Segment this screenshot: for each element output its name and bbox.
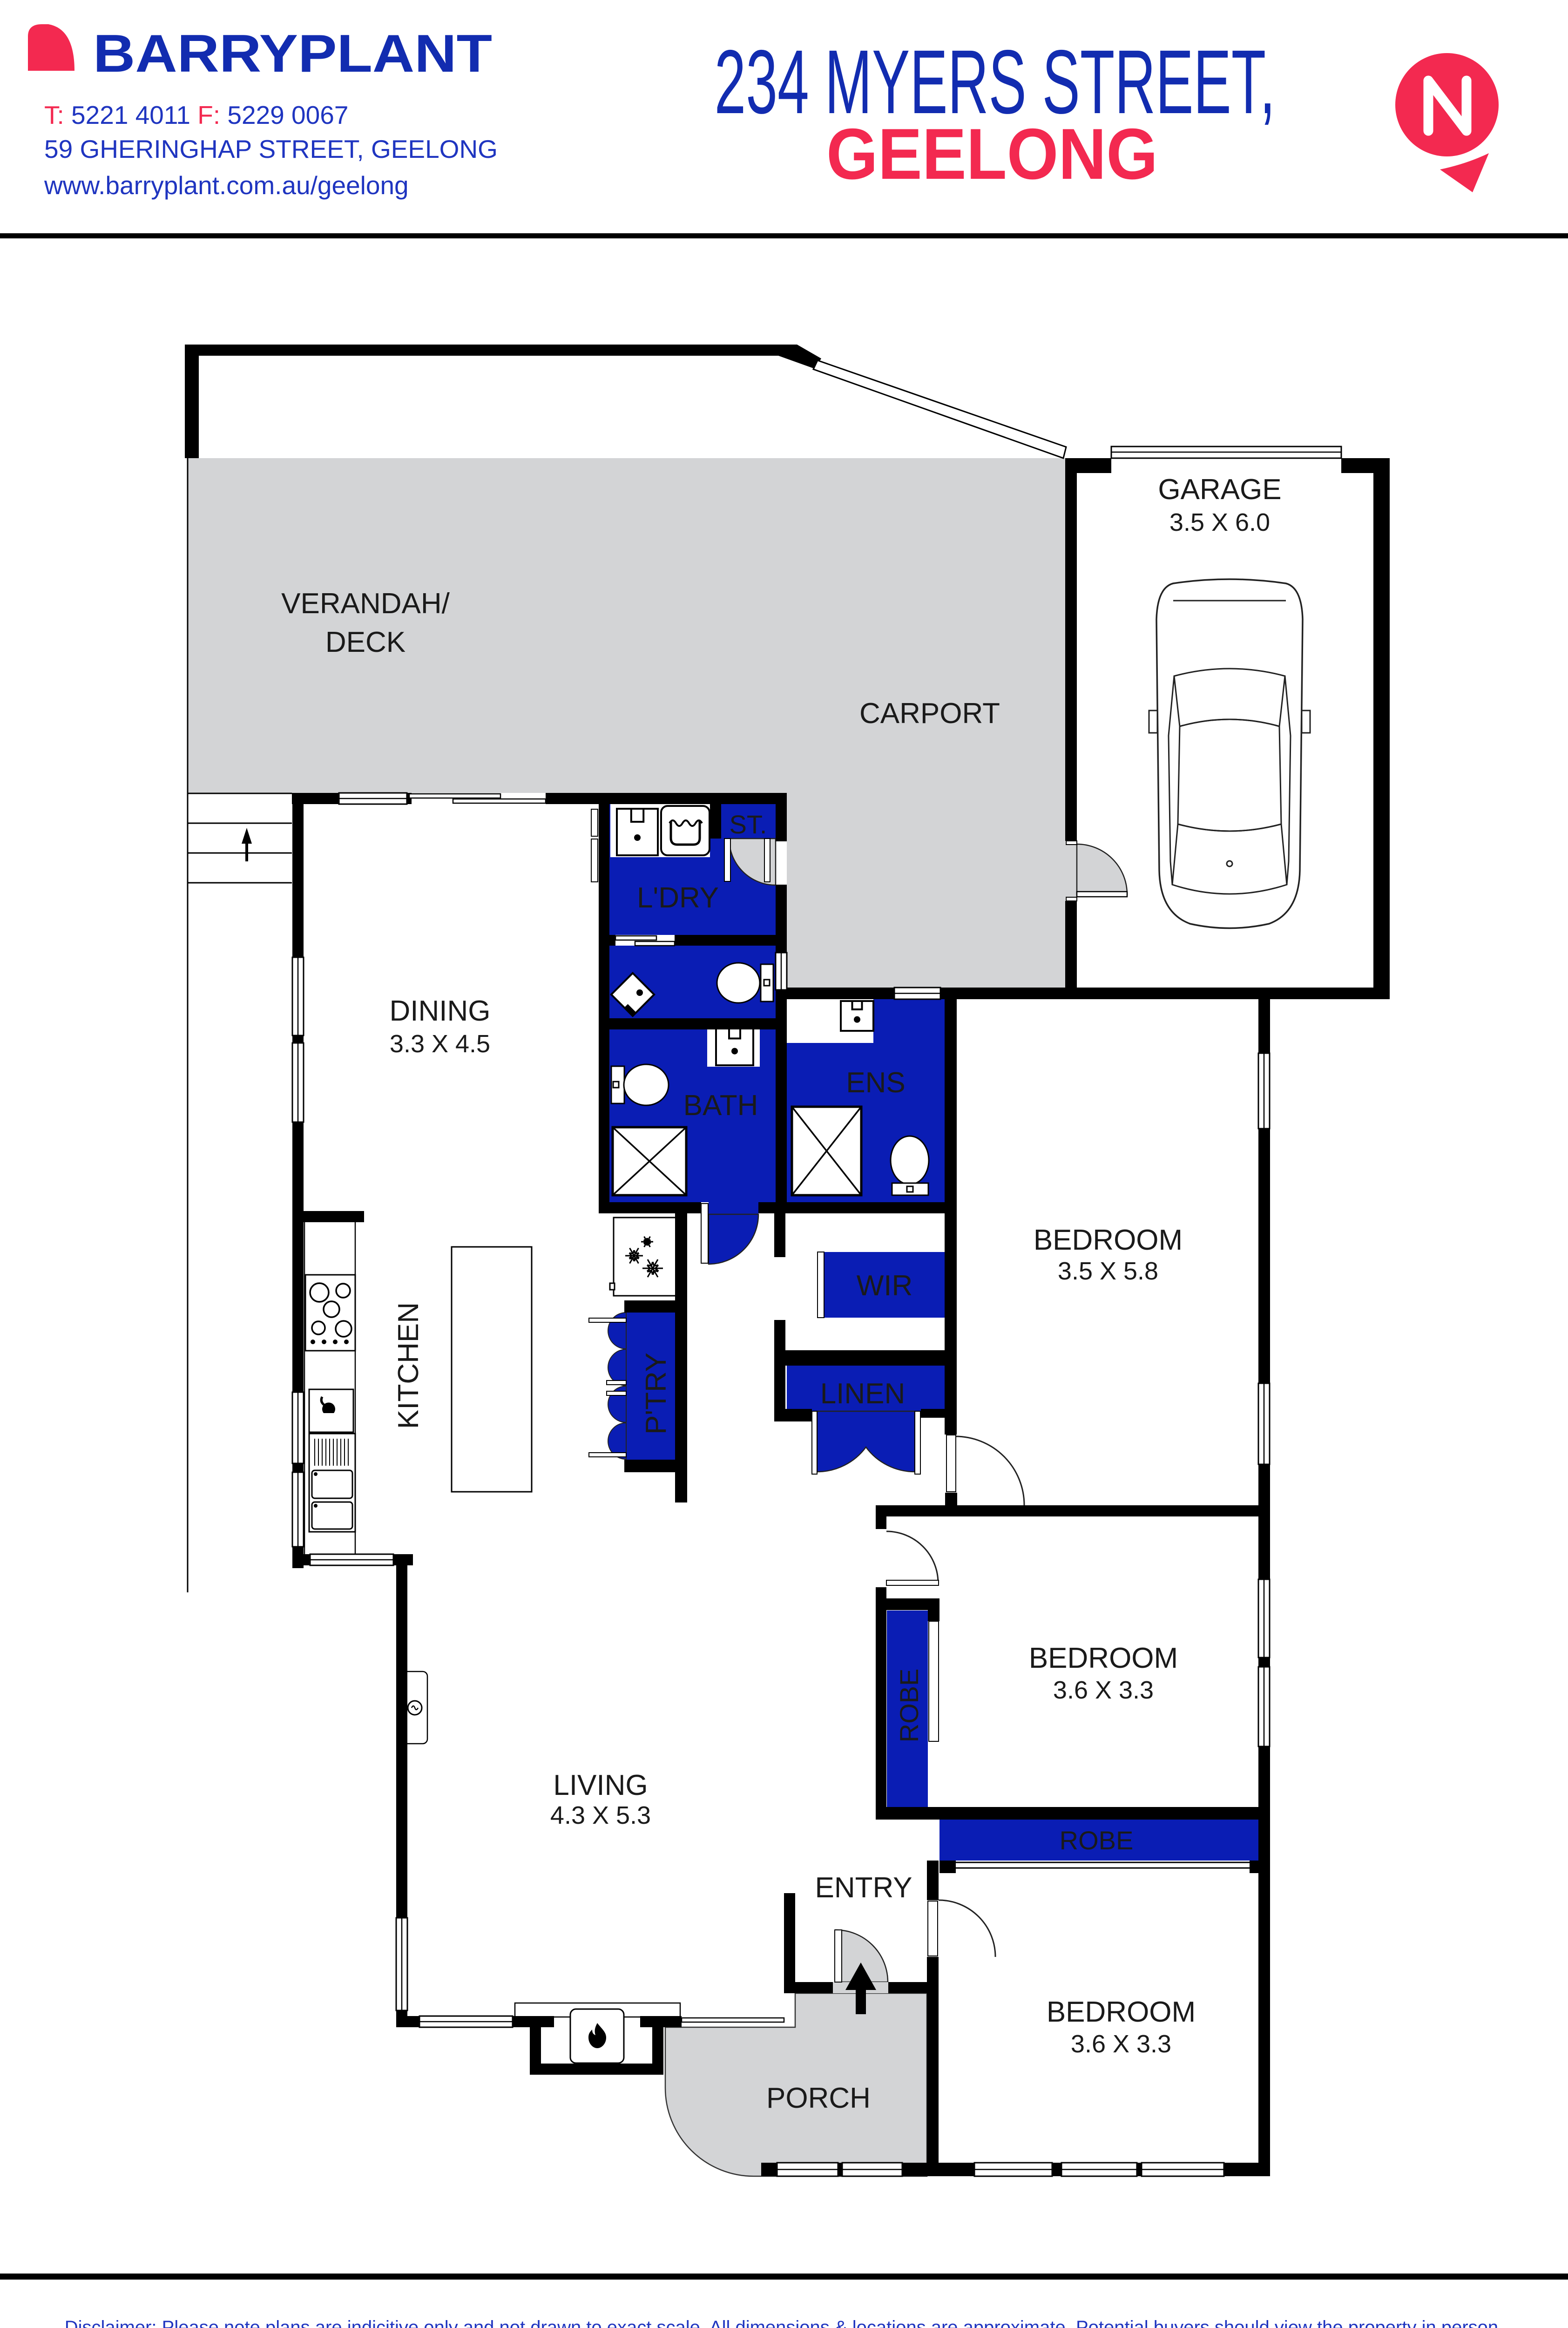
svg-text:KITCHEN: KITCHEN [392, 1302, 425, 1429]
svg-text:ENS: ENS [846, 1067, 905, 1099]
svg-text:PORCH: PORCH [766, 2082, 871, 2114]
svg-text:BEDROOM: BEDROOM [1029, 1642, 1178, 1674]
svg-text:3.5 X 5.8: 3.5 X 5.8 [1058, 1257, 1158, 1285]
svg-text:T: 5221 4011 F: 5229 0067: T: 5221 4011 F: 5229 0067 [44, 101, 348, 129]
svg-text:4.3 X 5.3: 4.3 X 5.3 [550, 1801, 651, 1829]
svg-text:L'DRY: L'DRY [637, 882, 719, 914]
svg-text:GEELONG: GEELONG [826, 114, 1158, 194]
svg-text:P'TRY: P'TRY [640, 1353, 672, 1435]
svg-text:3.6 X 3.3: 3.6 X 3.3 [1071, 2030, 1171, 2058]
svg-text:ROBE: ROBE [894, 1669, 924, 1743]
svg-text:3.5 X 6.0: 3.5 X 6.0 [1169, 508, 1270, 536]
svg-text:GARAGE: GARAGE [1158, 474, 1281, 506]
svg-text:DINING: DINING [390, 995, 491, 1027]
svg-text:59 GHERINGHAP STREET, GEELONG: 59 GHERINGHAP STREET, GEELONG [44, 135, 498, 163]
svg-text:www.barryplant.com.au/geelong: www.barryplant.com.au/geelong [44, 171, 409, 200]
svg-text:Disclaimer: Please note plans: Disclaimer: Please note plans are indici… [65, 2317, 1504, 2328]
svg-text:BEDROOM: BEDROOM [1034, 1224, 1183, 1256]
svg-text:ROBE: ROBE [1060, 1826, 1134, 1855]
svg-text:VERANDAH/: VERANDAH/ [281, 588, 450, 620]
svg-text:ST.: ST. [730, 810, 767, 839]
svg-text:BATH: BATH [683, 1090, 758, 1122]
svg-text:WIR: WIR [857, 1270, 913, 1302]
svg-text:3.3 X 4.5: 3.3 X 4.5 [390, 1030, 490, 1058]
svg-text:LINEN: LINEN [820, 1378, 906, 1410]
svg-text:3.6 X 3.3: 3.6 X 3.3 [1053, 1676, 1154, 1704]
svg-text:CARPORT: CARPORT [859, 697, 1000, 730]
svg-text:BEDROOM: BEDROOM [1047, 1996, 1196, 2028]
svg-text:DECK: DECK [325, 626, 406, 658]
svg-text:ENTRY: ENTRY [815, 1872, 912, 1904]
svg-text:LIVING: LIVING [553, 1769, 648, 1801]
svg-text:BARRYPLANT: BARRYPLANT [93, 24, 492, 83]
